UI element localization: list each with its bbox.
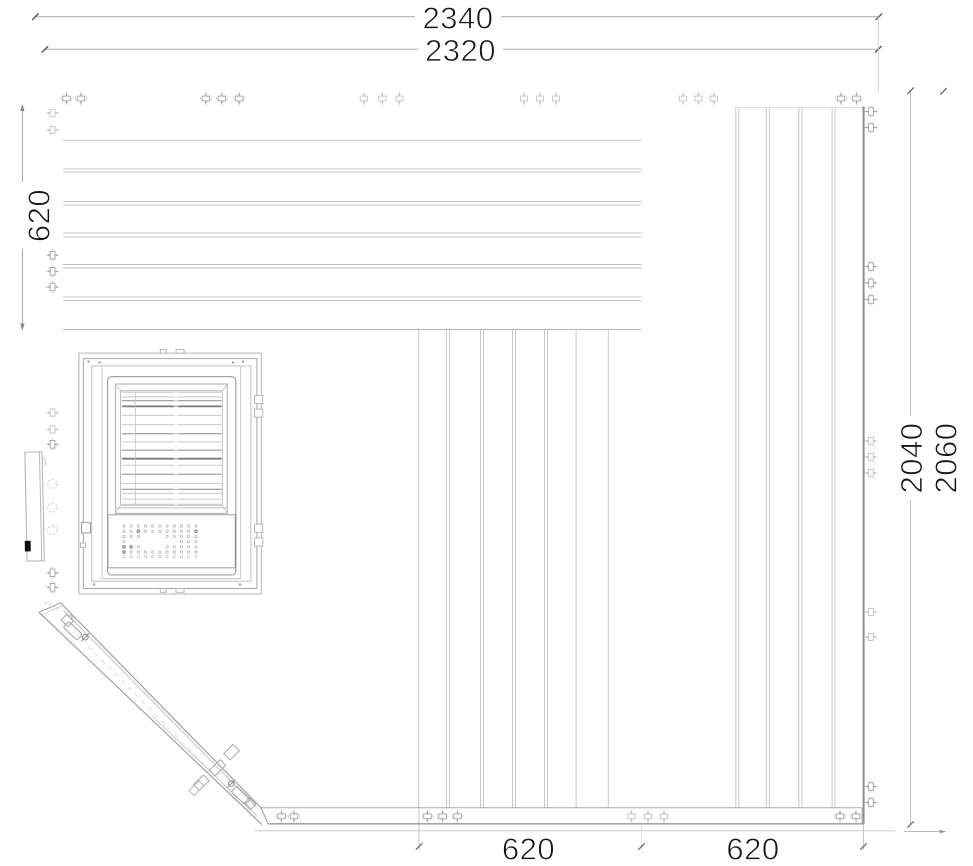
svg-text:2040: 2040 <box>894 423 929 494</box>
svg-text:2340: 2340 <box>423 1 494 36</box>
svg-text:2060: 2060 <box>929 423 964 494</box>
svg-text:2320: 2320 <box>425 33 496 68</box>
svg-text:620: 620 <box>22 189 57 242</box>
svg-text:620: 620 <box>502 832 555 866</box>
svg-text:620: 620 <box>726 832 779 866</box>
